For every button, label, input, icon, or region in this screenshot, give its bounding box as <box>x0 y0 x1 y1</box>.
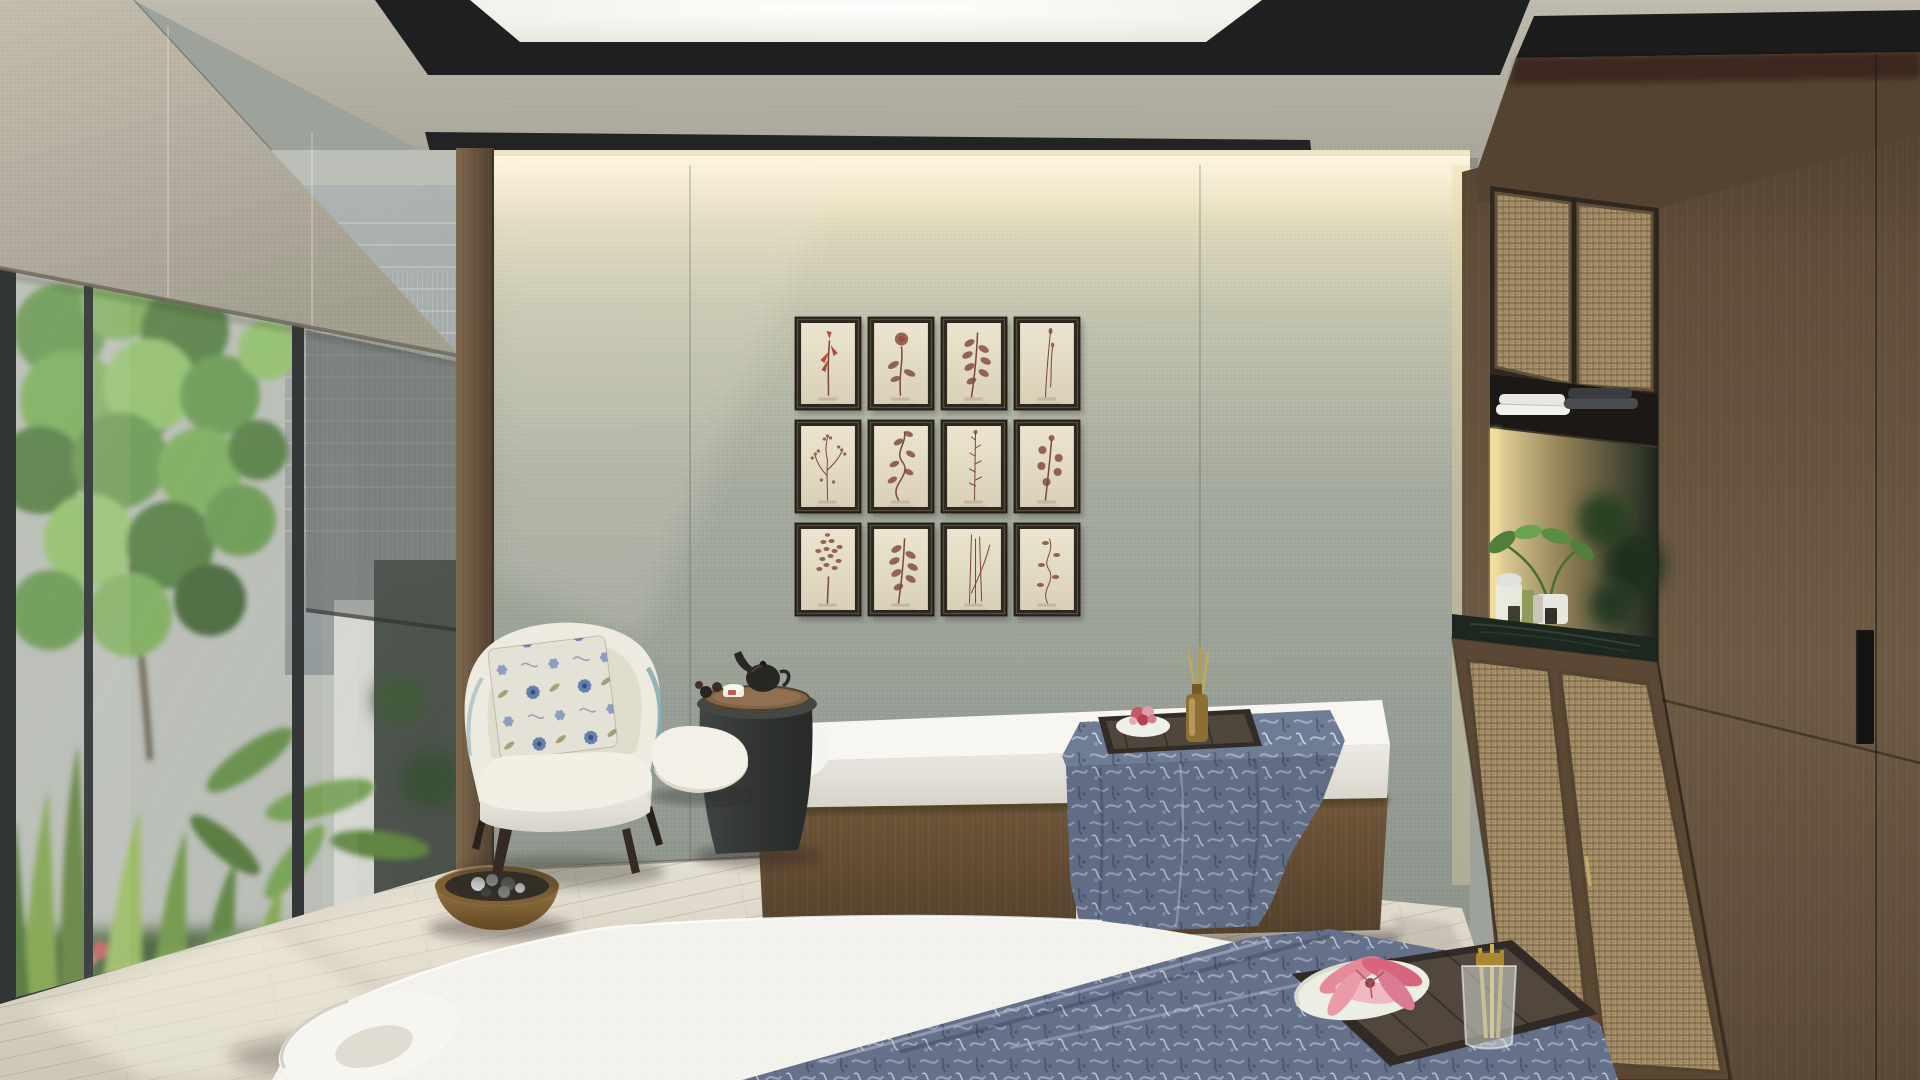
spa-room-scene <box>0 0 1920 1080</box>
ambient-haze <box>0 0 1920 1080</box>
spa-room-render <box>0 0 1920 1080</box>
